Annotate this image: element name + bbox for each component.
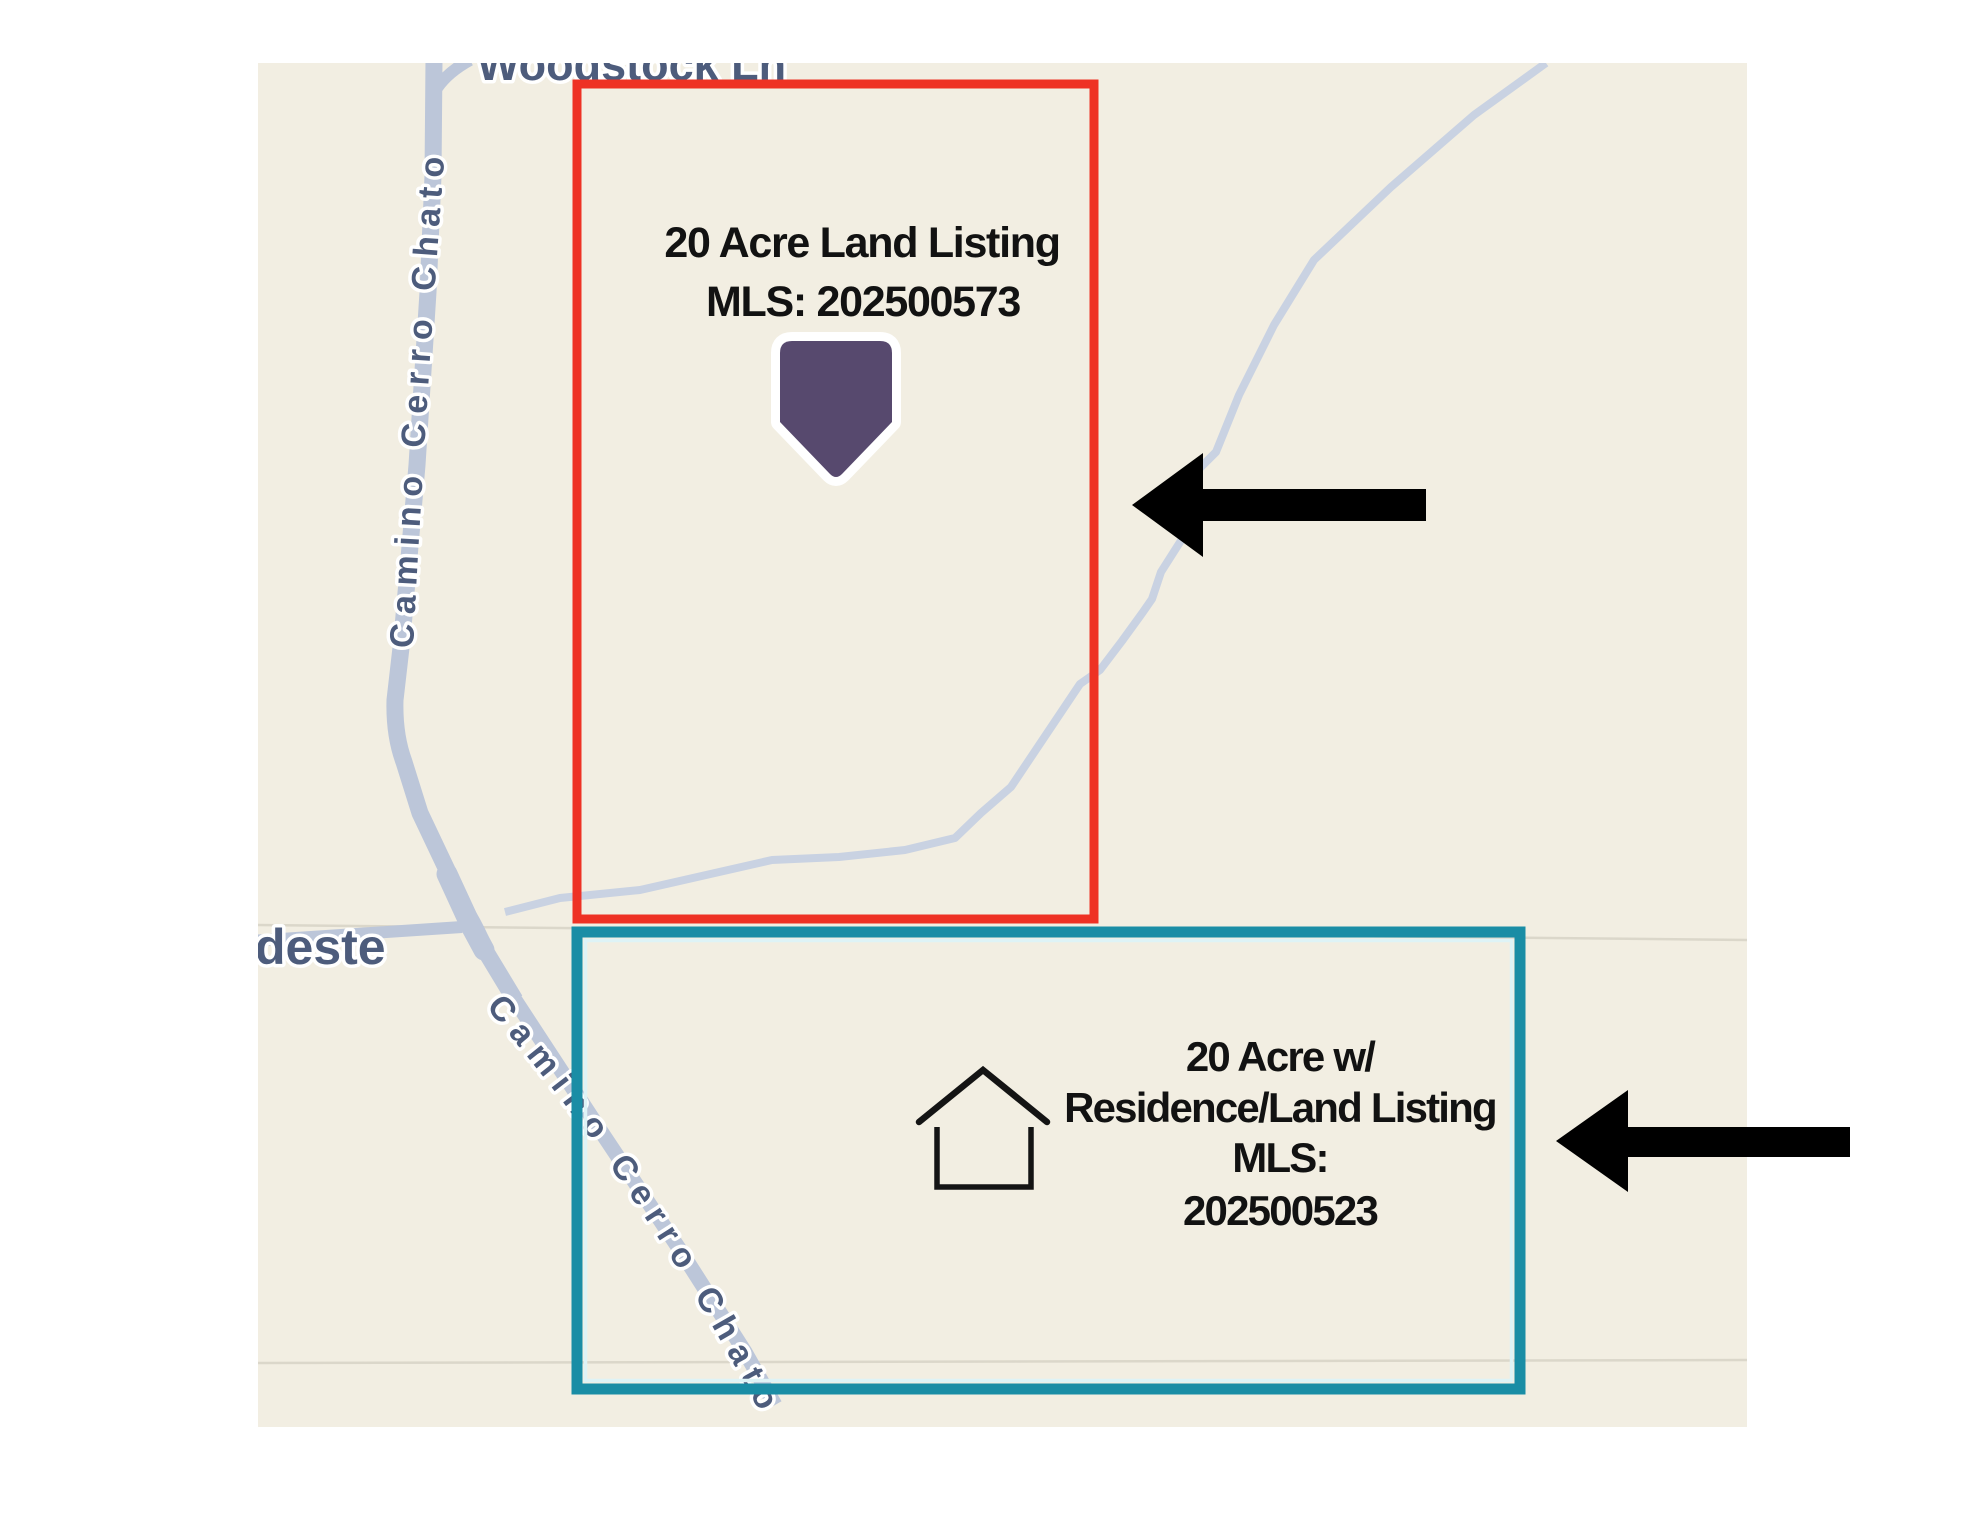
svg-text:MLS:: MLS: <box>1232 1134 1327 1181</box>
svg-text:20 Acre w/: 20 Acre w/ <box>1186 1033 1376 1080</box>
svg-text:MLS: 202500573: MLS: 202500573 <box>706 278 1020 326</box>
svg-text:20 Acre Land Listing: 20 Acre Land Listing <box>664 219 1059 267</box>
svg-text:Residence/Land Listing: Residence/Land Listing <box>1064 1084 1496 1131</box>
svg-text:deste: deste <box>255 919 386 975</box>
svg-text:202500523: 202500523 <box>1183 1187 1377 1234</box>
